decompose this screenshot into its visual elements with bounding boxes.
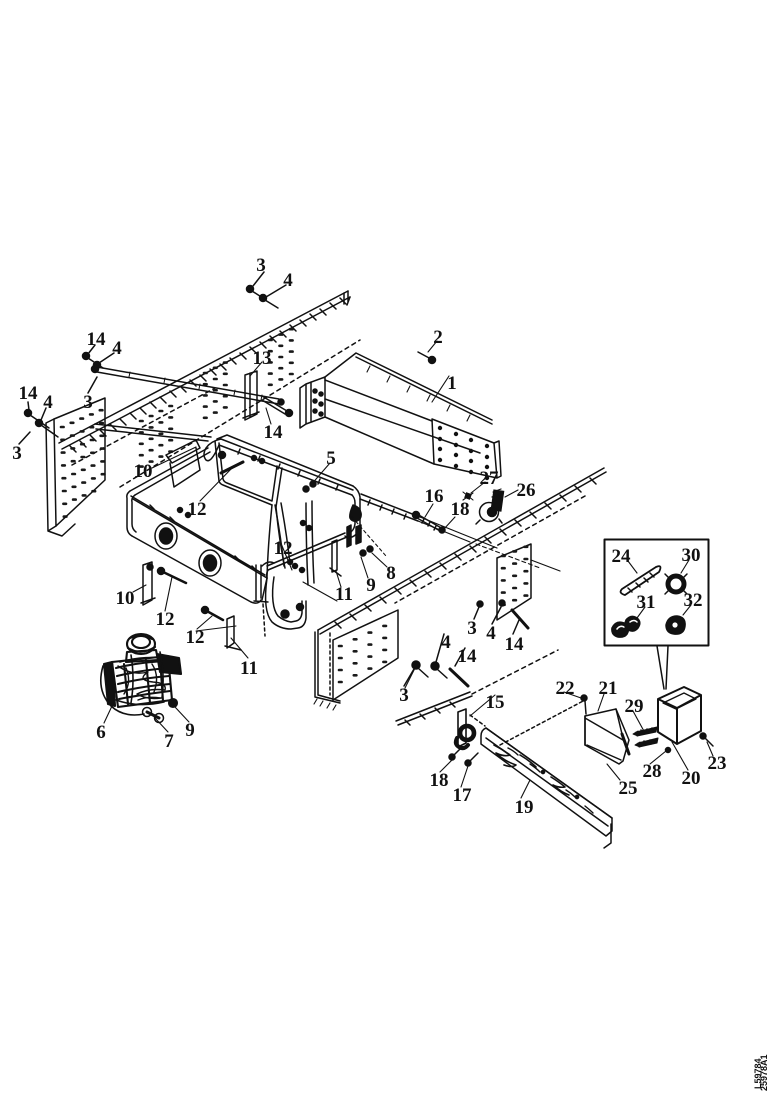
svg-text:27: 27 [480, 468, 500, 489]
svg-text:2: 2 [433, 327, 443, 348]
svg-text:3: 3 [467, 618, 477, 639]
svg-text:3: 3 [12, 443, 22, 464]
svg-text:6: 6 [96, 722, 106, 743]
svg-text:14: 14 [505, 634, 525, 655]
svg-text:12: 12 [188, 499, 207, 520]
svg-text:28: 28 [643, 761, 662, 782]
svg-text:18: 18 [430, 770, 449, 791]
svg-text:4: 4 [43, 392, 53, 413]
svg-text:16: 16 [425, 486, 444, 507]
svg-text:15: 15 [486, 692, 505, 713]
svg-text:12: 12 [156, 609, 175, 630]
svg-text:22: 22 [556, 678, 575, 699]
svg-text:10: 10 [116, 588, 135, 609]
svg-text:18: 18 [451, 499, 470, 520]
svg-text:14: 14 [19, 383, 39, 404]
svg-text:14: 14 [458, 646, 478, 667]
svg-text:12: 12 [186, 627, 205, 648]
svg-text:11: 11 [335, 584, 353, 605]
svg-text:23: 23 [708, 753, 727, 774]
svg-text:3: 3 [83, 392, 93, 413]
svg-text:17: 17 [453, 785, 473, 806]
svg-text:L59784: L59784 [753, 1058, 763, 1089]
svg-text:4: 4 [112, 338, 122, 359]
svg-text:24: 24 [612, 546, 632, 567]
svg-text:3: 3 [256, 255, 266, 276]
svg-text:8: 8 [386, 563, 396, 584]
svg-text:25: 25 [619, 778, 638, 799]
svg-text:19: 19 [515, 797, 534, 818]
svg-text:13: 13 [253, 348, 272, 369]
svg-text:10: 10 [134, 461, 153, 482]
svg-text:1: 1 [447, 373, 457, 394]
svg-text:20: 20 [682, 768, 701, 789]
svg-text:9: 9 [366, 575, 376, 596]
svg-text:9: 9 [185, 720, 195, 741]
svg-text:4: 4 [486, 623, 496, 644]
svg-text:4: 4 [283, 270, 293, 291]
svg-text:7: 7 [164, 731, 174, 752]
svg-text:26: 26 [517, 480, 536, 501]
svg-text:32: 32 [684, 590, 703, 611]
svg-text:4: 4 [441, 632, 451, 653]
svg-text:30: 30 [682, 545, 701, 566]
svg-text:3: 3 [399, 685, 409, 706]
svg-text:14: 14 [87, 329, 107, 350]
svg-text:29: 29 [625, 696, 644, 717]
svg-text:31: 31 [637, 592, 656, 613]
svg-text:21: 21 [599, 678, 618, 699]
svg-text:5: 5 [326, 448, 336, 469]
svg-text:11: 11 [240, 658, 258, 679]
svg-text:14: 14 [264, 422, 284, 443]
svg-text:12: 12 [274, 538, 293, 559]
